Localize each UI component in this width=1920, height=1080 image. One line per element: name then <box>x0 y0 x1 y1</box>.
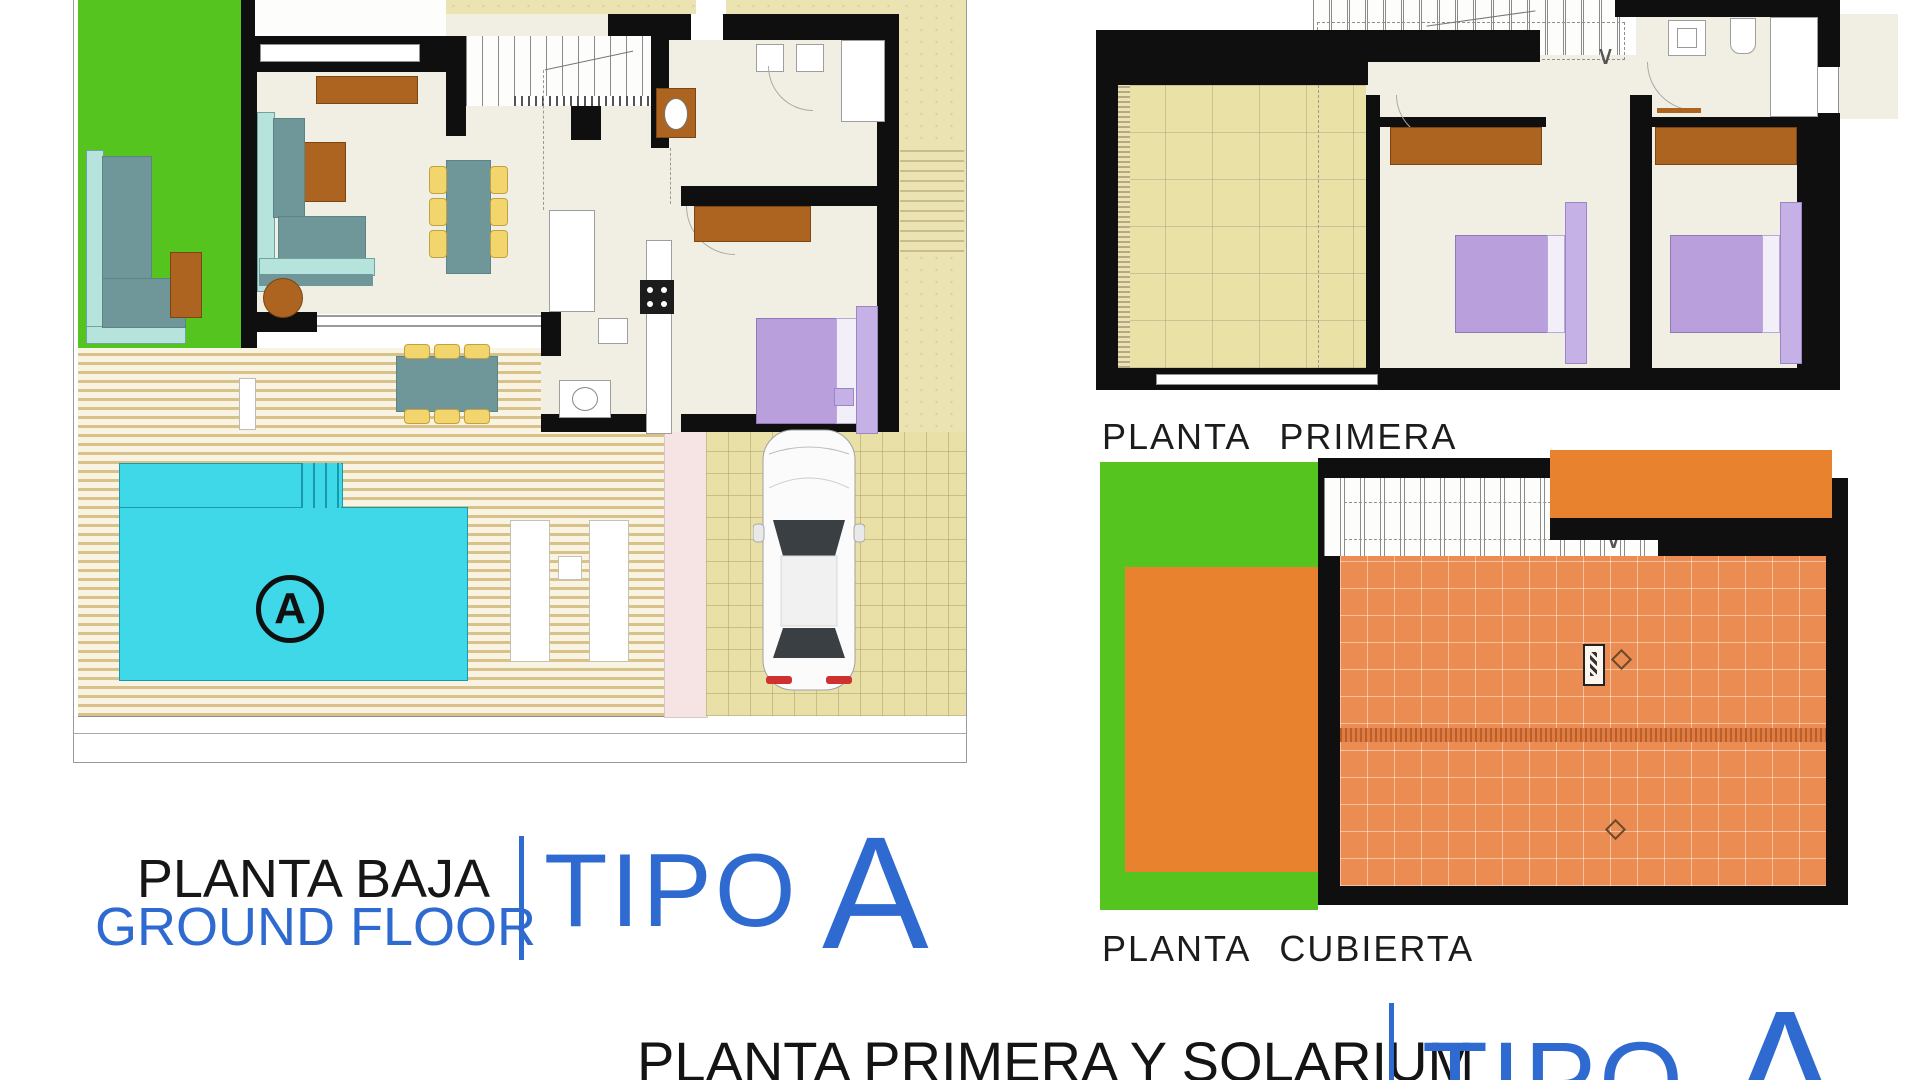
roof-plan: ∨ <box>1096 440 1852 910</box>
kitchen-island <box>549 210 595 312</box>
type-word-bottom: TIPO <box>1422 1026 1686 1080</box>
garden-side-table <box>170 252 202 318</box>
wall <box>1318 458 1556 478</box>
wall <box>1797 113 1840 390</box>
stove <box>640 280 674 314</box>
terrace <box>1118 85 1366 368</box>
wall <box>1096 30 1368 85</box>
pool-marker-letter: A <box>274 584 306 634</box>
outdoor-chair <box>404 344 430 359</box>
burner <box>647 287 653 293</box>
sidewalk-line <box>74 733 966 734</box>
wall <box>1366 95 1380 368</box>
wall <box>541 312 561 356</box>
bed <box>1455 235 1549 333</box>
slope-arrow <box>1605 819 1626 840</box>
outdoor-chair <box>404 409 430 424</box>
terrace-hatch <box>1118 85 1130 368</box>
wall <box>1615 0 1840 17</box>
bed-headboard <box>1565 202 1587 364</box>
wall <box>1643 117 1797 127</box>
sink-basin <box>1677 28 1697 48</box>
bed-headboard <box>856 306 878 434</box>
sofa-seat <box>273 118 305 218</box>
dining-table <box>446 160 491 274</box>
shelf <box>1657 108 1701 113</box>
bed-sheet <box>1547 235 1565 333</box>
wardrobe <box>1390 127 1542 165</box>
planter <box>239 378 256 430</box>
sofa-chaise <box>278 216 366 264</box>
bed-sheet <box>1762 235 1780 333</box>
type-letter-bottom: A <box>1728 986 1841 1080</box>
wall <box>681 186 899 206</box>
roof-ridge <box>1340 728 1826 742</box>
lounger-table <box>558 556 582 580</box>
kitchen-sink-unit <box>598 318 628 344</box>
solarium-left <box>1125 567 1325 872</box>
coffee-table <box>304 142 346 202</box>
window <box>1817 67 1839 113</box>
room-top-sliver <box>241 0 446 36</box>
chimney <box>1583 644 1605 686</box>
bathtub <box>1770 17 1818 117</box>
solarium-top <box>1550 450 1832 518</box>
floor-plan-sheet: A PLANTA BAJA GROUND FLOOR TIPO A <box>0 0 1920 1080</box>
roof-label: PLANTA CUBIERTA <box>1102 928 1474 970</box>
wall <box>1550 518 1848 540</box>
dining-chair <box>429 198 447 226</box>
bed-headboard <box>1780 202 1802 364</box>
sun-lounger <box>589 520 629 662</box>
entrance-path <box>696 0 726 14</box>
wall <box>1096 30 1118 390</box>
wall <box>571 106 601 140</box>
title-divider <box>1389 1003 1394 1080</box>
terrace-dashed-line <box>1318 85 1319 368</box>
window <box>1156 374 1378 385</box>
ground-floor-title-en: GROUND FLOOR <box>95 896 490 958</box>
dining-chair <box>490 166 508 194</box>
bed-sheet <box>836 318 858 424</box>
kitchen-dashed-line <box>670 148 671 204</box>
wall <box>241 0 255 36</box>
car-top-view <box>753 424 865 696</box>
shower <box>841 40 885 122</box>
sideboard <box>316 76 418 104</box>
wardrobe <box>1655 127 1797 165</box>
dining-chair <box>490 230 508 258</box>
outdoor-table <box>396 356 498 412</box>
kitchen-counter-south <box>559 380 611 418</box>
wall <box>1630 95 1652 390</box>
garden-sofa-seat <box>102 156 152 282</box>
bottom-title: PLANTA PRIMERA Y SOLARIUM <box>637 1029 1474 1080</box>
roof-tiles <box>1340 556 1826 886</box>
type-word: TIPO <box>544 839 799 943</box>
pool-marker: A <box>256 575 324 643</box>
garden-sofa-bottom <box>86 326 186 344</box>
nightstand <box>834 388 854 406</box>
outdoor-chair <box>464 344 490 359</box>
wall <box>446 36 466 136</box>
toilet <box>664 98 688 130</box>
wall <box>1345 30 1540 62</box>
dining-chair <box>429 230 447 258</box>
type-letter: A <box>822 813 929 973</box>
bed <box>1670 235 1764 333</box>
sun-lounger <box>510 520 550 662</box>
kitchen-dashed-line <box>543 70 544 210</box>
outdoor-chair <box>434 409 460 424</box>
dining-chair <box>490 198 508 226</box>
kitchen-counter <box>646 240 672 434</box>
slope-arrow <box>1611 649 1632 670</box>
stair-direction-arrow: ∨ <box>1596 42 1615 68</box>
toilet <box>1730 18 1756 54</box>
entrance-door-gap <box>691 14 723 40</box>
wall <box>877 206 899 432</box>
sink-bowl <box>572 387 598 411</box>
outdoor-chair <box>434 344 460 359</box>
round-table <box>263 278 303 318</box>
wardrobe <box>694 206 811 242</box>
ground-floor-plan: A <box>73 0 967 763</box>
bath-sink <box>1668 20 1706 56</box>
chimney-vent <box>1590 652 1597 676</box>
wall <box>241 36 257 348</box>
pool-steps <box>301 463 341 508</box>
sliding-door <box>317 315 541 327</box>
window <box>260 44 420 62</box>
wall <box>1815 17 1840 67</box>
dining-chair <box>429 166 447 194</box>
title-divider <box>519 836 524 960</box>
side-steps <box>900 148 964 252</box>
first-floor-plan: ∨ <box>1096 0 1840 392</box>
outdoor-chair <box>464 409 490 424</box>
stair-railing <box>514 96 651 106</box>
